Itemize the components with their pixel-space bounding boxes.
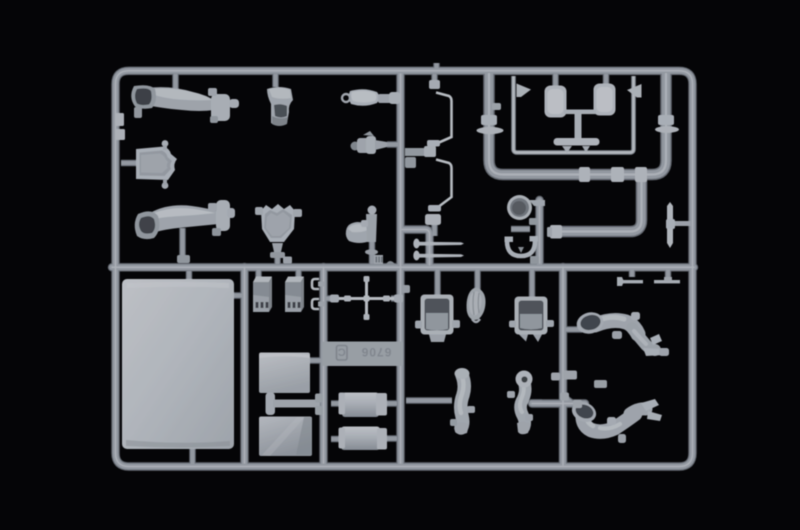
svg-text:C: C <box>338 346 346 358</box>
svg-text:6706: 6706 <box>361 345 392 359</box>
